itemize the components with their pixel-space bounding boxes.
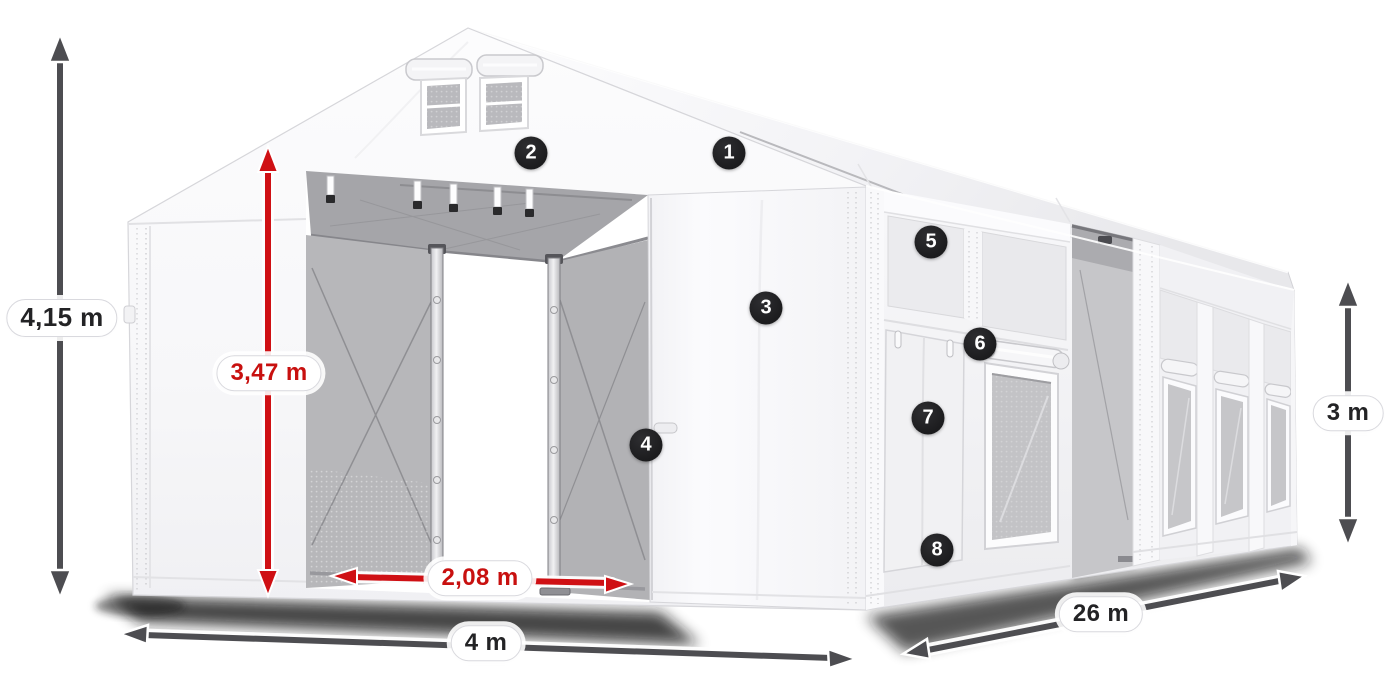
dimension-label-entrance-width: 2,08 m	[427, 560, 532, 596]
side-wall-open-section	[1072, 224, 1140, 578]
side-wall-back-module	[1133, 238, 1297, 566]
tent-illustration	[0, 0, 1400, 700]
dimension-label-total-height: 4,15 m	[6, 299, 117, 337]
marker-badge-4[interactable]: 4	[630, 429, 663, 462]
door-handle	[654, 423, 677, 433]
marker-badge-2[interactable]: 2	[515, 137, 548, 170]
marker-badge-7[interactable]: 7	[912, 402, 945, 435]
dimension-label-length: 26 m	[1059, 596, 1143, 632]
marker-badge-6[interactable]: 6	[964, 328, 997, 361]
marker-badge-8[interactable]: 8	[921, 534, 954, 567]
dimension-label-width: 4 m	[451, 625, 522, 661]
marker-badge-1[interactable]: 1	[713, 137, 746, 170]
front-door-panel	[648, 187, 866, 610]
marker-badge-3[interactable]: 3	[750, 292, 783, 325]
entrance-opening	[306, 171, 650, 602]
dimension-label-side-height: 3 m	[1313, 395, 1384, 431]
dimension-label-inner-height: 3,47 m	[216, 355, 321, 391]
marker-badge-5[interactable]: 5	[915, 226, 948, 259]
tent-dimensions-diagram: 4,15 m 3,47 m 2,08 m 4 m 26 m 3 m 1 2 3 …	[0, 0, 1400, 700]
side-door-flap	[884, 330, 964, 572]
